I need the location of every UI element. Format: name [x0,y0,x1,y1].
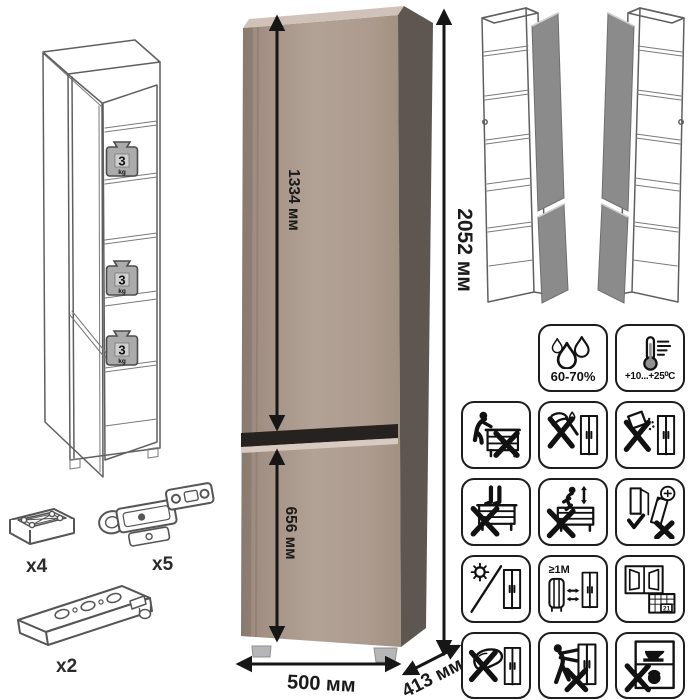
svg-text:≥1М: ≥1М [549,564,570,576]
hinge-count-label: x5 [152,554,174,575]
shelf-load-badge: 3 kg [107,142,138,176]
ventilate-room-icon: 21 [615,555,685,623]
anchor-to-wall-icon [615,478,685,546]
lower-door-height-label: 656 мм [282,506,299,559]
keep-1m-from-heat-icon: ≥1М [538,555,608,623]
avoid-direct-sunlight-icon [461,555,531,623]
no-standing-icon [461,478,531,546]
shelf-load-badge: 3 kg [107,261,138,295]
product-infographic: { "dimensions": { "upper_door_height": "… [0,0,689,700]
cabinet-foot [374,648,397,662]
upper-door-height-label: 1334 мм [285,169,302,231]
no-dragging-icon [538,632,608,699]
open-door-lower [538,204,568,303]
width-label: 500 мм [287,671,357,697]
no-sitting-icon [461,401,531,469]
temperature-value: +10...+25⁰C [625,372,675,382]
svg-text:kg: kg [118,358,126,365]
cabinet-foot [252,646,271,657]
rail-count-label: x2 [56,656,77,677]
svg-text:3: 3 [118,154,125,169]
care-icons-panel: 60-70% +10...+25⁰C [461,324,689,700]
no-abrasive-cleaning-icon [461,632,531,699]
cabinet-render: 1334 мм 656 мм 2052 мм 500 мм 413 мм [228,0,473,700]
door-orientation-variants [468,2,689,314]
hardware-rail [18,586,152,645]
svg-text:kg: kg [118,288,126,295]
humidity-icon: 60-70% [538,324,608,392]
no-jumping-icon [538,478,608,546]
svg-text:21: 21 [663,606,671,613]
temperature-icon: +10...+25⁰C [615,324,685,392]
no-heavy-items-icon [615,632,685,699]
shelf-load-badge: 3 kg [107,331,138,365]
assembled-cabinet-wireframe: 3 kg 3 kg 3 kg [6,28,228,484]
no-spilling-icon [615,401,685,469]
cabinet-body [241,6,433,662]
variant-cabinet [482,8,568,303]
svg-text:kg: kg [118,169,126,176]
hardware-hinge [95,483,219,552]
hardware-foot [10,509,74,544]
svg-text:3: 3 [118,273,125,288]
no-sharp-tools-icon [538,401,608,469]
hardware-parts: x4 x5 x2 [4,468,232,700]
open-door-upper [532,13,564,211]
svg-text:3: 3 [118,343,125,358]
foot-count-label: x4 [26,556,48,577]
humidity-value: 60-70% [551,370,596,383]
